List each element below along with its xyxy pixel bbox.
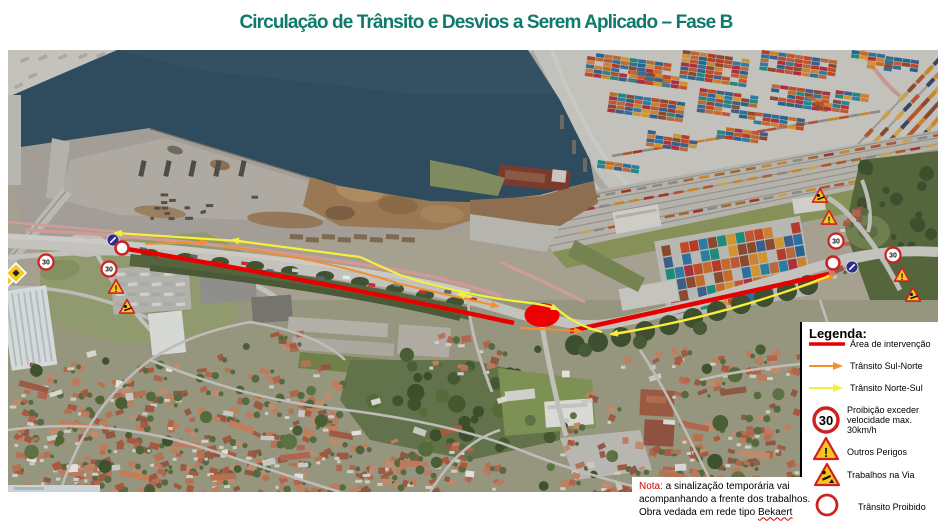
svg-text:30: 30	[42, 260, 50, 267]
svg-text:!: !	[900, 272, 903, 282]
svg-text:30: 30	[832, 239, 840, 246]
svg-text:30: 30	[105, 267, 113, 274]
svg-text:!: !	[827, 215, 830, 225]
svg-text:!: !	[114, 284, 117, 294]
svg-text:30: 30	[889, 253, 897, 260]
